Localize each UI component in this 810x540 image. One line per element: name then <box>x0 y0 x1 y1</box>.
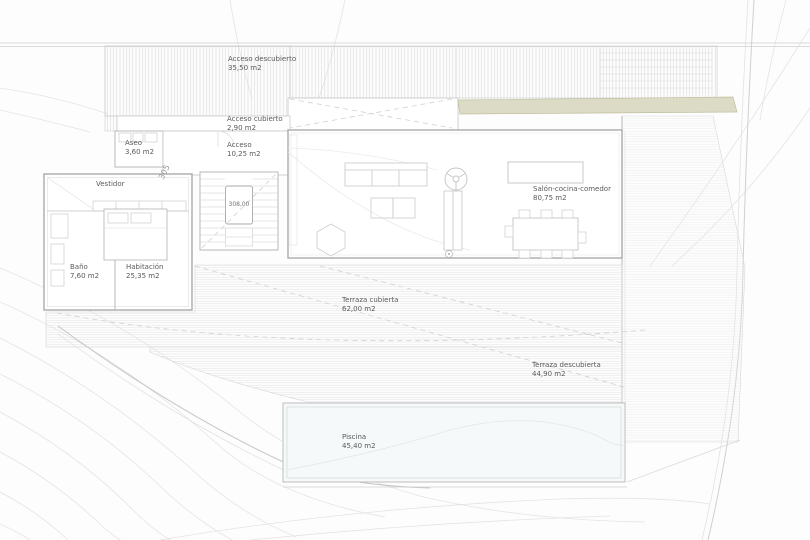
bedroom-block <box>44 174 192 310</box>
plan-linework <box>0 0 810 540</box>
room-name: Terraza cubierta <box>342 296 398 305</box>
room-label-acceso: Acceso 10,25 m2 <box>227 141 261 159</box>
room-label-terraza-descubierta: Terraza descubierta 44,90 m2 <box>532 361 601 379</box>
room-label-acceso-descubierto: Acceso descubierto 35,50 m2 <box>228 55 296 73</box>
bed <box>104 209 167 260</box>
terrace-right-deck <box>622 116 745 442</box>
room-label-piscina: Piscina 45,40 m2 <box>342 433 376 451</box>
room-name: Baño <box>70 263 99 272</box>
room-area: 80,75 m2 <box>533 194 611 203</box>
room-label-vestidor: Vestidor <box>96 180 125 189</box>
room-area: 7,60 m2 <box>70 272 99 281</box>
stair-level-label: 308,00 <box>224 201 254 209</box>
tall-cabinet <box>444 191 462 250</box>
room-area: 45,40 m2 <box>342 442 376 451</box>
room-label-terraza-cubierta: Terraza cubierta 62,00 m2 <box>342 296 398 314</box>
room-name: Terraza descubierta <box>532 361 601 370</box>
room-label-salon: Salón-cocina-comedor 80,75 m2 <box>533 185 611 203</box>
room-area: 25,35 m2 <box>126 272 164 281</box>
kitchen-island <box>508 162 583 183</box>
pool-basin <box>283 403 625 482</box>
sofa <box>345 163 427 186</box>
room-name: Salón-cocina-comedor <box>533 185 611 194</box>
room-name: Piscina <box>342 433 376 442</box>
lounge-chair <box>445 168 467 190</box>
room-area: 62,00 m2 <box>342 305 398 314</box>
room-name: Habitación <box>126 263 164 272</box>
room-area: 3,60 m2 <box>125 148 154 157</box>
room-area: 10,25 m2 <box>227 150 261 159</box>
room-area: 44,90 m2 <box>532 370 601 379</box>
room-area: 35,50 m2 <box>228 64 296 73</box>
room-name: Acceso descubierto <box>228 55 296 64</box>
planter-strip <box>458 97 737 114</box>
room-label-bano: Baño 7,60 m2 <box>70 263 99 281</box>
room-label-acceso-cubierto: Acceso cubierto 2,90 m2 <box>227 115 283 133</box>
room-name: Aseo <box>125 139 154 148</box>
room-label-habitacion: Habitación 25,35 m2 <box>126 263 164 281</box>
room-area: 2,90 m2 <box>227 124 283 133</box>
room-name: Acceso cubierto <box>227 115 283 124</box>
room-name: Acceso <box>227 141 261 150</box>
floor-plan: Acceso descubierto 35,50 m2 Acceso cubie… <box>0 0 810 540</box>
pool <box>283 403 627 487</box>
room-name: Vestidor <box>96 180 125 189</box>
column-marker <box>446 251 453 258</box>
room-label-aseo: Aseo 3,60 m2 <box>125 139 154 157</box>
